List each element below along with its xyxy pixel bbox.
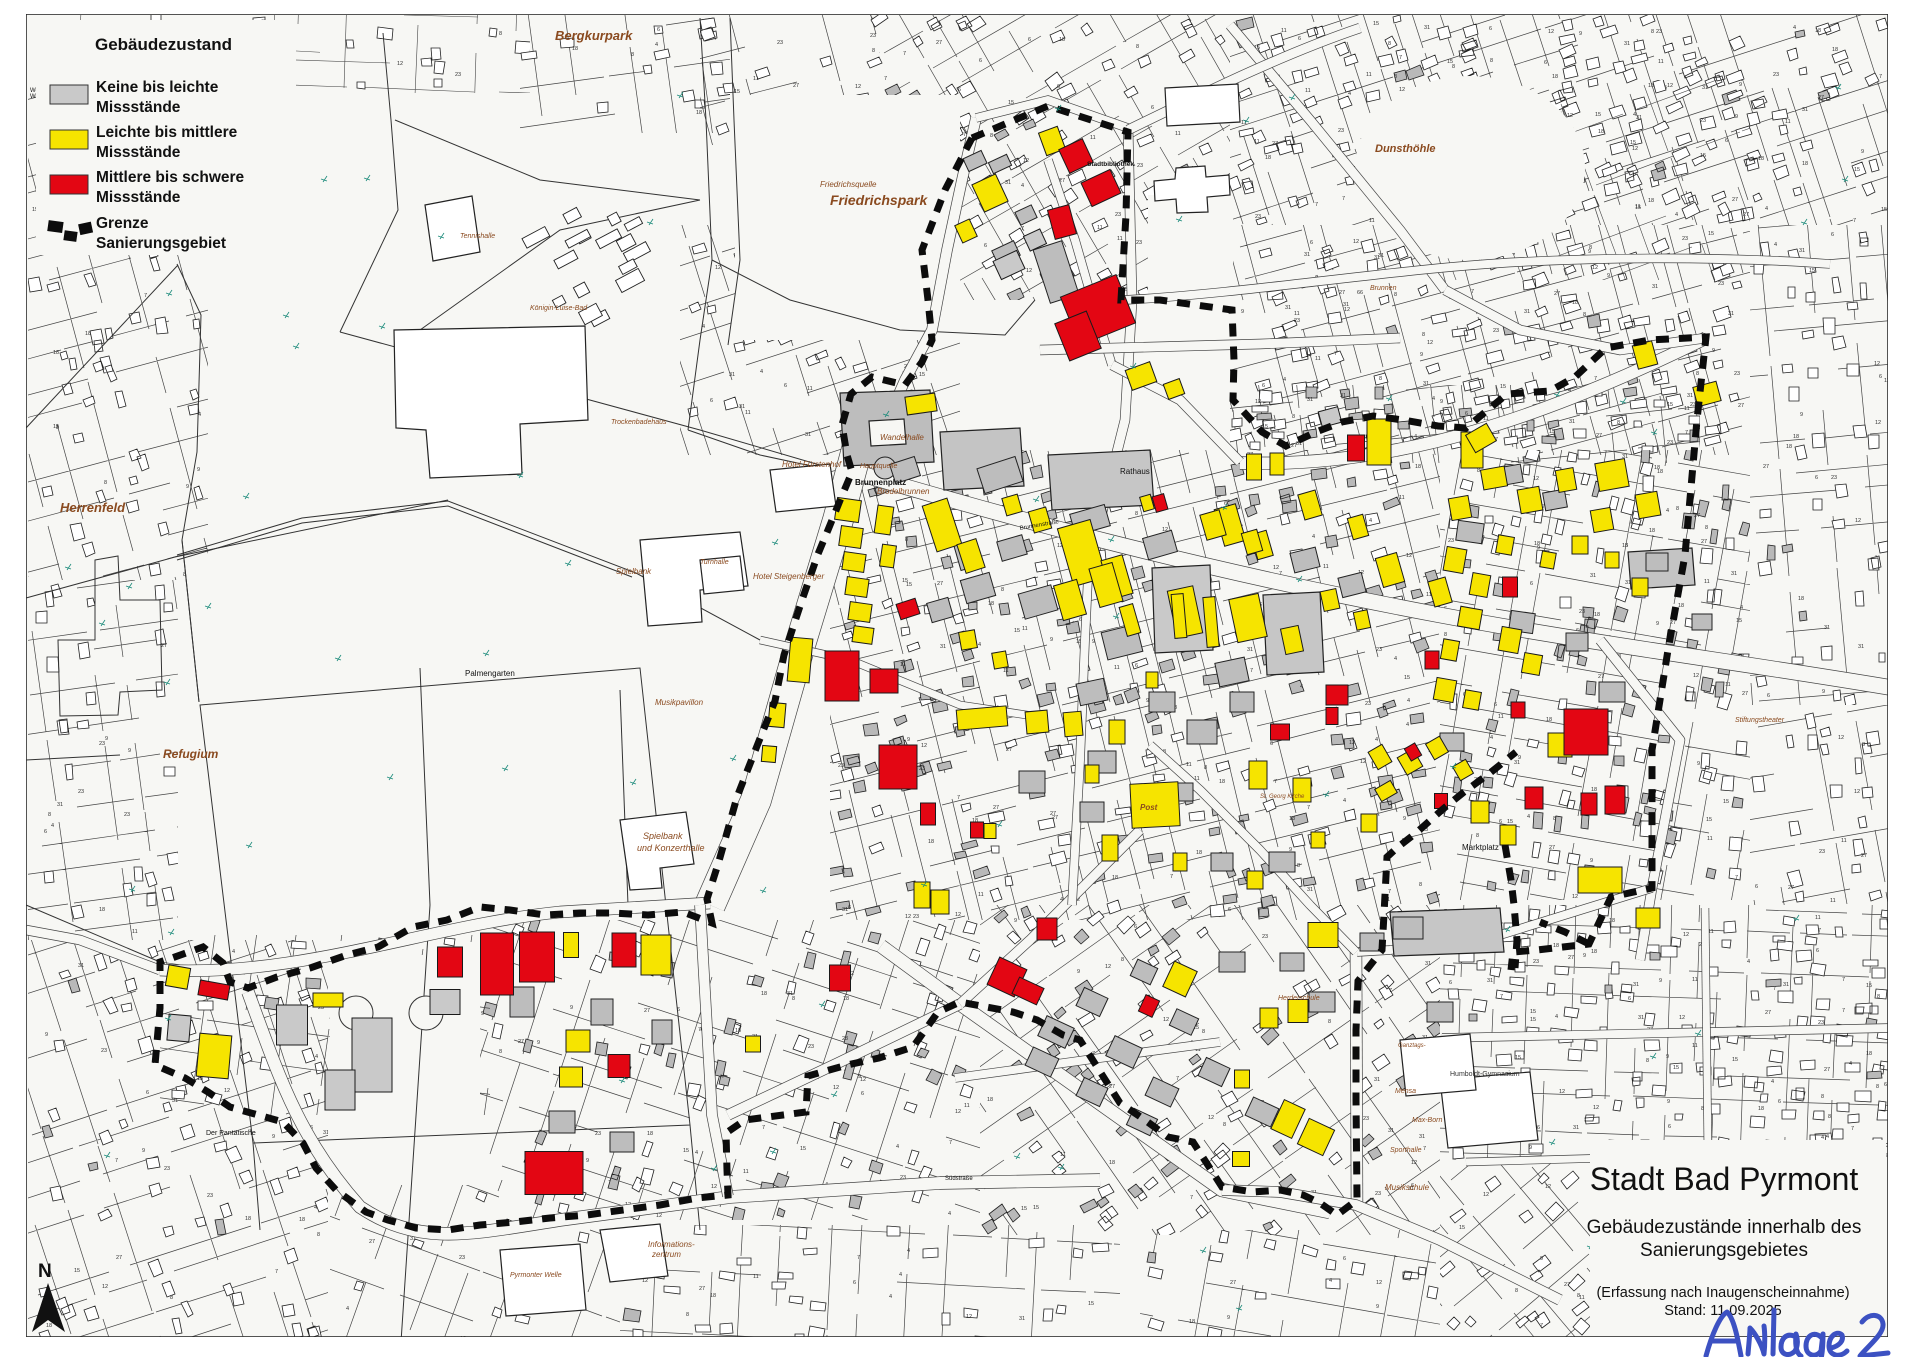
svg-text:7: 7 [1170,874,1173,880]
svg-text:15: 15 [1014,628,1020,634]
svg-text:23: 23 [870,33,876,39]
svg-text:18: 18 [85,331,91,337]
svg-text:6: 6 [710,398,713,404]
svg-text:7: 7 [1342,196,1345,202]
svg-text:11: 11 [753,76,759,82]
svg-text:18: 18 [1654,465,1660,471]
svg-text:9: 9 [1712,348,1715,354]
svg-text:11: 11 [1841,838,1847,844]
svg-text:6: 6 [1028,37,1031,43]
svg-text:31: 31 [1783,982,1789,988]
svg-text:4: 4 [896,1144,899,1150]
svg-text:27: 27 [518,1039,524,1045]
svg-text:6: 6 [1499,819,1502,825]
svg-text:4: 4 [1283,377,1286,383]
svg-text:31: 31 [1858,644,1864,650]
svg-text:6: 6 [958,87,961,93]
svg-text:9: 9 [858,1074,861,1080]
svg-text:12: 12 [1854,789,1860,795]
svg-text:23: 23 [1682,236,1688,242]
svg-text:15: 15 [1854,167,1860,173]
svg-text:12: 12 [1376,1280,1382,1286]
svg-text:27: 27 [1050,811,1056,817]
svg-text:31: 31 [57,802,63,808]
svg-text:11: 11 [1254,139,1260,145]
svg-text:15: 15 [1673,1065,1679,1071]
svg-text:6: 6 [979,58,982,64]
svg-text:15: 15 [1373,21,1379,27]
svg-text:12: 12 [1567,113,1573,119]
svg-text:12: 12 [921,743,927,749]
svg-text:8: 8 [1821,1094,1824,1100]
svg-text:8: 8 [1477,468,1480,474]
svg-text:12: 12 [1208,1115,1214,1121]
svg-text:6: 6 [1228,907,1231,913]
svg-text:4: 4 [1747,959,1750,965]
svg-text:6: 6 [1151,105,1154,111]
svg-text:18: 18 [1112,875,1118,881]
svg-text:18: 18 [1289,816,1295,822]
svg-text:15: 15 [1708,231,1714,237]
svg-text:7: 7 [1818,928,1821,934]
svg-text:4: 4 [1740,605,1743,611]
svg-text:18: 18 [696,110,702,116]
svg-text:9: 9 [1583,953,1586,959]
svg-text:6: 6 [1628,996,1631,1002]
svg-text:12: 12 [1026,268,1032,274]
svg-text:7: 7 [957,795,960,801]
svg-text:9: 9 [1739,82,1742,88]
svg-text:9: 9 [570,1005,573,1011]
svg-text:11: 11 [978,892,984,898]
svg-text:15: 15 [1732,1057,1738,1063]
svg-text:31: 31 [1388,1128,1394,1134]
svg-text:23: 23 [1718,281,1724,287]
svg-text:St. Georg Kirche: St. Georg Kirche [1260,794,1305,800]
svg-text:15: 15 [1866,983,1872,989]
svg-text:12: 12 [1572,894,1578,900]
svg-text:9: 9 [481,1011,484,1017]
svg-text:6: 6 [784,383,787,389]
svg-text:4: 4 [948,1211,951,1217]
svg-text:Missstände: Missstände [96,99,181,116]
svg-text:18: 18 [761,991,767,997]
svg-text:Friedrichsquelle: Friedrichsquelle [820,180,877,189]
svg-text:11: 11 [1305,88,1311,94]
svg-text:6: 6 [1815,475,1818,481]
svg-text:Mensa: Mensa [1395,1088,1416,1095]
svg-text:Tennishalle: Tennishalle [460,233,495,240]
svg-text:27: 27 [1732,197,1738,203]
svg-text:12: 12 [1255,399,1261,405]
svg-text:6: 6 [1879,374,1882,380]
svg-text:15: 15 [1447,59,1453,65]
svg-text:7: 7 [1021,226,1024,232]
svg-text:4: 4 [889,1294,892,1300]
svg-text:15: 15 [800,1146,806,1152]
svg-text:7: 7 [857,1255,860,1261]
svg-text:12: 12 [1593,1105,1599,1111]
svg-text:11: 11 [1707,836,1713,842]
svg-text:18: 18 [1415,464,1421,470]
svg-text:9: 9 [1440,399,1443,405]
svg-text:18: 18 [1866,1051,1872,1057]
svg-text:18: 18 [1815,28,1821,34]
svg-text:23: 23 [124,812,130,818]
svg-text:Wandelhalle: Wandelhalle [880,433,924,442]
svg-text:9: 9 [1659,978,1662,984]
svg-text:8: 8 [1476,833,1479,839]
svg-text:9: 9 [1092,639,1095,645]
svg-text:31: 31 [1005,180,1011,186]
svg-text:15: 15 [1459,1225,1465,1231]
svg-text:9: 9 [1420,352,1423,358]
svg-text:8: 8 [1589,245,1592,251]
svg-text:23: 23 [1533,959,1539,965]
svg-text:18: 18 [1793,434,1799,440]
svg-text:4: 4 [1406,722,1409,728]
svg-text:7: 7 [1307,805,1310,811]
svg-text:12: 12 [1163,1017,1169,1023]
svg-text:Stadtbibliothek: Stadtbibliothek [1087,161,1134,168]
svg-text:12: 12 [1406,553,1412,559]
svg-text:8: 8 [905,537,908,543]
svg-text:4: 4 [232,949,235,955]
svg-text:12: 12 [1273,565,1279,571]
svg-text:8: 8 [1136,44,1139,50]
svg-text:23: 23 [1656,29,1662,35]
svg-text:9: 9 [128,748,131,754]
svg-text:12: 12 [966,1314,972,1320]
svg-text:8: 8 [1394,74,1397,80]
svg-text:7: 7 [1315,202,1318,208]
svg-text:9: 9 [1241,309,1244,315]
svg-text:18: 18 [1546,717,1552,723]
svg-text:7: 7 [1334,351,1337,357]
svg-text:18: 18 [1189,1319,1195,1325]
svg-text:15: 15 [1706,817,1712,823]
svg-text:4: 4 [1394,656,1397,662]
svg-text:31: 31 [1728,311,1734,317]
svg-text:8: 8 [1292,414,1295,420]
svg-text:23: 23 [1137,163,1143,169]
svg-text:27: 27 [1861,853,1867,859]
svg-text:15: 15 [734,89,740,95]
svg-text:31: 31 [1424,25,1430,31]
svg-text:8: 8 [990,133,993,139]
svg-text:18: 18 [1553,943,1559,949]
svg-text:4: 4 [1765,206,1768,212]
svg-text:27: 27 [369,1239,375,1245]
svg-text:9: 9 [1014,918,1017,924]
svg-text:6: 6 [1831,232,1834,238]
svg-text:7: 7 [1842,1008,1845,1014]
svg-text:23: 23 [777,40,783,46]
svg-text:Rathaus: Rathaus [1120,467,1150,476]
svg-text:12: 12 [1632,146,1638,152]
svg-text:27: 27 [1788,885,1794,891]
svg-text:11: 11 [1815,915,1821,921]
svg-text:11: 11 [1323,564,1329,570]
svg-text:23: 23 [1338,128,1344,134]
svg-text:8: 8 [1651,29,1654,35]
svg-text:11: 11 [743,1169,749,1175]
svg-text:15: 15 [1500,384,1506,390]
svg-text:Hauptquelle: Hauptquelle [860,463,897,470]
svg-text:7: 7 [963,132,966,138]
svg-text:9: 9 [1697,761,1700,767]
svg-text:Stadt Bad Pyrmont: Stadt Bad Pyrmont [1590,1161,1859,1197]
svg-text:8: 8 [1828,1114,1831,1120]
svg-text:9: 9 [186,484,189,490]
svg-text:9: 9 [1656,621,1659,627]
svg-text:12: 12 [1399,87,1405,93]
svg-text:4: 4 [1348,91,1351,97]
svg-text:7: 7 [1500,994,1503,1000]
svg-text:23: 23 [1819,849,1825,855]
svg-text:23: 23 [459,1255,465,1261]
svg-text:15: 15 [1667,402,1673,408]
svg-text:23: 23 [101,1048,107,1054]
svg-text:23: 23 [808,1044,814,1050]
svg-text:9: 9 [1861,149,1864,155]
svg-text:27: 27 [699,1286,705,1292]
svg-text:31: 31 [1702,85,1708,91]
svg-text:6: 6 [1884,1082,1887,1088]
svg-text:Sanierungsgebiet: Sanierungsgebiet [96,235,226,252]
svg-text:9: 9 [1590,858,1593,864]
svg-text:Gebäudezustand: Gebäudezustand [95,35,232,54]
svg-text:27: 27 [993,805,999,811]
svg-text:7: 7 [762,1125,765,1131]
svg-text:31: 31 [1285,305,1291,311]
svg-text:27: 27 [1339,290,1345,296]
svg-text:Südstraße: Südstraße [945,1176,973,1182]
svg-text:23: 23 [919,766,925,772]
svg-text:4: 4 [899,1272,902,1278]
svg-text:11: 11 [1366,72,1372,78]
svg-text:31: 31 [1304,252,1310,258]
svg-text:31: 31 [1425,961,1431,967]
svg-text:11: 11 [1003,668,1009,674]
svg-text:23: 23 [1773,72,1779,78]
svg-text:Refugium: Refugium [163,747,219,761]
svg-text:15: 15 [1700,153,1706,159]
svg-text:8: 8 [1553,816,1556,822]
svg-text:27: 27 [1568,955,1574,961]
svg-text:4: 4 [1343,798,1346,804]
svg-text:Humboldt-Gymnasium: Humboldt-Gymnasium [1450,1071,1520,1078]
svg-text:4: 4 [1369,518,1372,524]
svg-text:11: 11 [964,1103,970,1109]
svg-text:15: 15 [1736,618,1742,624]
svg-text:Stiftungstheater: Stiftungstheater [1735,717,1785,724]
svg-text:7: 7 [1540,1323,1543,1329]
svg-text:15: 15 [1088,1301,1094,1307]
svg-text:8: 8 [1617,420,1620,426]
svg-text:7: 7 [1735,875,1738,881]
svg-text:7: 7 [903,51,906,57]
svg-text:12: 12 [1349,740,1355,746]
svg-text:27: 27 [1670,620,1676,626]
svg-text:8: 8 [1422,332,1425,338]
svg-text:12: 12 [905,914,911,920]
svg-text:18: 18 [245,1216,251,1222]
svg-text:4: 4 [760,369,763,375]
svg-text:27: 27 [936,40,942,46]
svg-text:15: 15 [919,372,925,378]
svg-text:12: 12 [1855,518,1861,524]
svg-text:23: 23 [1365,701,1371,707]
svg-text:18: 18 [1758,1106,1764,1112]
svg-text:15: 15 [1630,140,1636,146]
svg-text:8: 8 [1394,292,1397,298]
svg-text:9: 9 [1077,969,1080,975]
svg-text:31: 31 [1687,393,1693,399]
svg-text:12: 12 [833,1085,839,1091]
svg-text:23: 23 [1375,1191,1381,1197]
svg-text:15: 15 [1530,1017,1536,1023]
svg-text:6: 6 [1357,290,1360,296]
svg-text:11: 11 [1692,977,1698,983]
svg-text:27: 27 [1818,95,1824,101]
svg-text:31: 31 [1307,887,1313,893]
svg-text:12: 12 [1411,1160,1417,1166]
svg-text:18: 18 [572,46,578,52]
svg-text:18: 18 [1649,528,1655,534]
svg-text:Sporthalle: Sporthalle [1390,1147,1422,1154]
svg-text:9: 9 [1666,1054,1669,1060]
svg-text:12: 12 [656,1213,662,1219]
svg-text:4: 4 [1407,698,1410,704]
svg-text:6: 6 [861,1091,864,1097]
svg-text:9: 9 [197,467,200,473]
svg-text:18: 18 [928,839,934,845]
svg-text:9: 9 [1050,637,1053,643]
svg-text:6: 6 [44,829,47,835]
svg-text:11: 11 [1658,59,1664,65]
svg-text:27: 27 [1272,141,1278,147]
svg-text:12: 12 [1679,1015,1685,1021]
svg-text:23: 23 [913,914,919,920]
svg-text:6: 6 [1310,240,1313,246]
svg-text:27: 27 [1598,674,1604,680]
svg-text:27: 27 [1554,291,1560,297]
svg-text:31: 31 [940,644,946,650]
svg-text:8: 8 [1001,587,1004,593]
svg-text:4: 4 [1432,396,1435,402]
svg-text:12: 12 [711,1184,717,1190]
svg-text:Missstände: Missstände [96,144,181,161]
svg-text:23: 23 [1831,475,1837,481]
svg-text:23: 23 [207,1193,213,1199]
svg-text:12: 12 [1483,1192,1489,1198]
svg-text:18: 18 [1802,161,1808,167]
svg-text:23: 23 [78,789,84,795]
svg-text:31: 31 [1802,107,1808,113]
svg-text:18: 18 [1265,155,1271,161]
svg-text:Dunsthöhle: Dunsthöhle [1375,143,1436,155]
svg-text:23: 23 [1294,318,1300,324]
svg-text:23: 23 [1376,647,1382,653]
svg-text:27: 27 [1701,539,1707,545]
svg-text:11: 11 [1090,135,1096,141]
svg-text:23: 23 [455,72,461,78]
svg-text:8: 8 [170,1295,173,1301]
svg-text:18: 18 [1832,47,1838,53]
svg-text:6: 6 [1489,26,1492,32]
svg-text:9: 9 [1227,1315,1230,1321]
svg-text:8: 8 [1223,1122,1226,1128]
svg-text:23: 23 [1700,118,1706,124]
svg-text:31: 31 [1636,115,1642,121]
svg-text:8: 8 [872,48,875,54]
svg-text:12: 12 [397,61,403,67]
svg-text:8: 8 [1121,957,1124,963]
svg-text:18: 18 [1758,156,1764,162]
svg-text:23: 23 [1136,240,1142,246]
svg-text:11: 11 [1097,225,1103,231]
svg-text:Informations-: Informations- [648,1240,695,1249]
svg-text:9: 9 [1735,114,1738,120]
svg-text:15: 15 [1404,675,1410,681]
svg-text:Pyrmonter Welle: Pyrmonter Welle [510,1272,562,1279]
svg-text:18: 18 [1594,612,1600,618]
svg-text:4: 4 [1675,212,1678,218]
svg-text:12: 12 [102,1284,108,1290]
svg-text:18: 18 [843,996,849,1002]
svg-text:Sanierungsgebietes: Sanierungsgebietes [1640,1240,1808,1261]
svg-text:31: 31 [1340,393,1346,399]
svg-text:27: 27 [793,83,799,89]
svg-text:15: 15 [1530,1009,1536,1015]
svg-text:6: 6 [1298,36,1301,42]
svg-text:9: 9 [142,1148,145,1154]
svg-text:12: 12 [715,265,721,271]
svg-text:8: 8 [631,52,634,58]
svg-text:Ganztags-: Ganztags- [1398,1043,1426,1049]
svg-text:6: 6 [1755,884,1758,890]
svg-text:11: 11 [1022,626,1028,632]
svg-text:Spielbank: Spielbank [616,567,652,576]
svg-text:12: 12 [1023,158,1029,164]
svg-text:9: 9 [45,1032,48,1038]
svg-text:23: 23 [1363,1116,1369,1122]
svg-text:12: 12 [1874,361,1880,367]
svg-text:27: 27 [1006,747,1012,753]
svg-text:18: 18 [1786,444,1792,450]
svg-text:6: 6 [1544,60,1547,66]
svg-text:18: 18 [1059,37,1065,43]
svg-text:4: 4 [1527,814,1530,820]
svg-text:27: 27 [1765,1010,1771,1016]
svg-text:4: 4 [1375,737,1378,743]
svg-text:31: 31 [805,432,811,438]
svg-text:Musikschule: Musikschule [1385,1183,1430,1192]
svg-text:9: 9 [105,736,108,742]
svg-text:zentrum: zentrum [651,1250,681,1259]
svg-text:11: 11 [1175,131,1181,137]
svg-text:4: 4 [1793,25,1796,31]
svg-text:7: 7 [1250,668,1253,674]
svg-text:Mittlere bis schwere: Mittlere bis schwere [96,169,245,186]
svg-text:18: 18 [1648,198,1654,204]
svg-text:Turnhalle: Turnhalle [700,559,729,566]
svg-text:12: 12 [1559,1089,1565,1095]
svg-text:27: 27 [161,643,167,649]
svg-text:8: 8 [1515,1288,1518,1294]
svg-text:27: 27 [644,1008,650,1014]
